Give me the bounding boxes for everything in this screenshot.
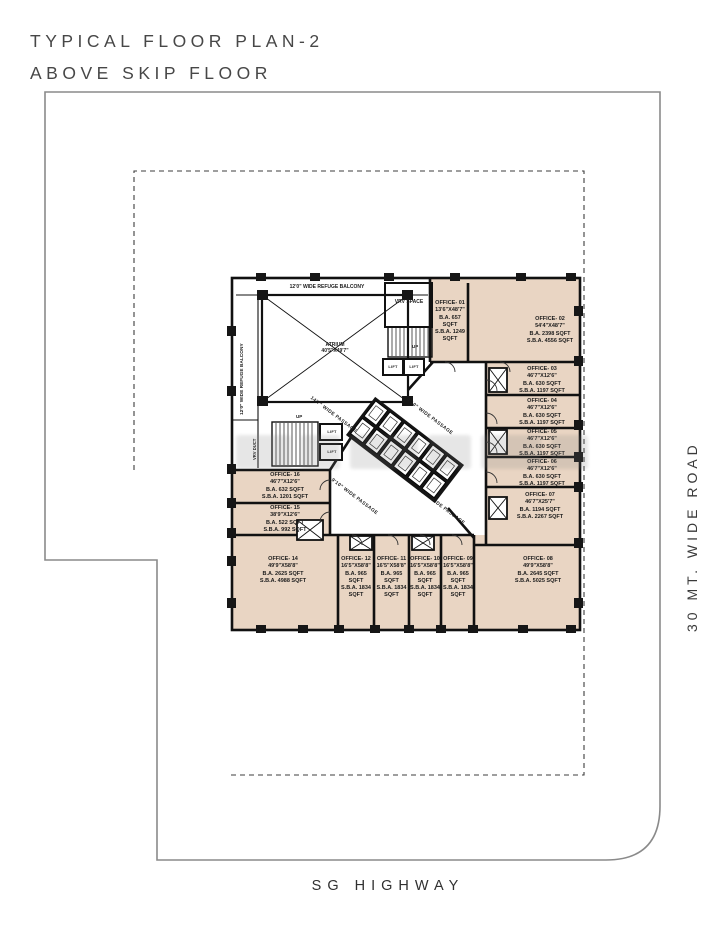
- lift-label-1: LIFT: [384, 364, 402, 369]
- office-03-label: OFFICE- 0346'7"X12'6"B.A. 630 SQFTS.B.A.…: [506, 366, 578, 395]
- stair-top: [388, 327, 432, 357]
- refuge-balcony-left-label: 12'0" WIDE REFUGE BALCONY: [240, 343, 245, 415]
- floor-plan-drawing: [0, 0, 716, 936]
- lift-bank: [346, 397, 464, 503]
- office-04-label: OFFICE- 0446'7"X12'6"B.A. 630 SQFTS.B.A.…: [506, 398, 578, 427]
- lift-label-2: LIFT: [405, 364, 423, 369]
- office-07-label: OFFICE- 0746'7"X25'7"B.A. 1194 SQFTS.B.A…: [502, 492, 578, 521]
- office-08-label: OFFICE- 0849'9"X58'8"B.A. 2645 SQFTS.B.A…: [492, 556, 584, 585]
- up-label-top: UP: [412, 344, 418, 349]
- title-line-1: TYPICAL FLOOR PLAN-2: [30, 26, 324, 58]
- office-05-label: OFFICE- 0546'7"X12'6"B.A. 630 SQFTS.B.A.…: [506, 429, 578, 458]
- office-14-label: OFFICE- 1449'9"X58'8"B.A. 2625 SQFTS.B.A…: [238, 556, 328, 585]
- vrv-duct-label: VRV DUCT: [252, 439, 257, 460]
- office-15-label: OFFICE- 1538'9"X12'6"B.A. 522 SQFTS.B.A.…: [244, 505, 326, 534]
- vrv-space-label: VRV SPACE: [384, 299, 434, 305]
- lift-label-4: LIFT: [322, 449, 342, 454]
- office-02-label: OFFICE- 0254'4"X48'7"B.A. 2398 SQFTS.B.A…: [506, 316, 594, 345]
- lift-label-3: LIFT: [322, 429, 342, 434]
- refuge-balcony-top-label: 12'0" WIDE REFUGE BALCONY: [252, 284, 402, 290]
- office-16-label: OFFICE- 1646'7"X12'6"B.A. 632 SQFTS.B.A.…: [244, 472, 326, 501]
- floor-plan-page: TYPICAL FLOOR PLAN-2 ABOVE SKIP FLOOR 30…: [0, 0, 716, 936]
- office-12-label: OFFICE- 1216'5"X58'8"B.A. 965 SQFTS.B.A.…: [340, 556, 372, 600]
- stair-left: [272, 422, 318, 466]
- title-line-2: ABOVE SKIP FLOOR: [30, 58, 324, 90]
- bottom-road-label: SG HIGHWAY: [288, 878, 488, 894]
- office-11-label: OFFICE- 1116'5"X58'8"B.A. 965 SQFTS.B.A.…: [376, 556, 407, 600]
- right-road-label: 30 MT. WIDE ROAD: [684, 382, 700, 632]
- office-06-label: OFFICE- 0646'7"X12'6"B.A. 630 SQFTS.B.A.…: [506, 459, 578, 488]
- office-09-label: OFFICE- 0916'5"X58'8"B.A. 965 SQFTS.B.A.…: [443, 556, 473, 600]
- up-label-left: UP: [296, 414, 302, 419]
- page-title: TYPICAL FLOOR PLAN-2 ABOVE SKIP FLOOR: [30, 26, 324, 89]
- office-01-label: OFFICE- 0113'6"X48'7"B.A. 657 SQFTS.B.A.…: [432, 300, 468, 344]
- office-10-label: OFFICE- 1016'5"X58'8"B.A. 965 SQFTS.B.A.…: [410, 556, 440, 600]
- atrium-label: ATRIUM 40'5"X49'7": [300, 342, 370, 354]
